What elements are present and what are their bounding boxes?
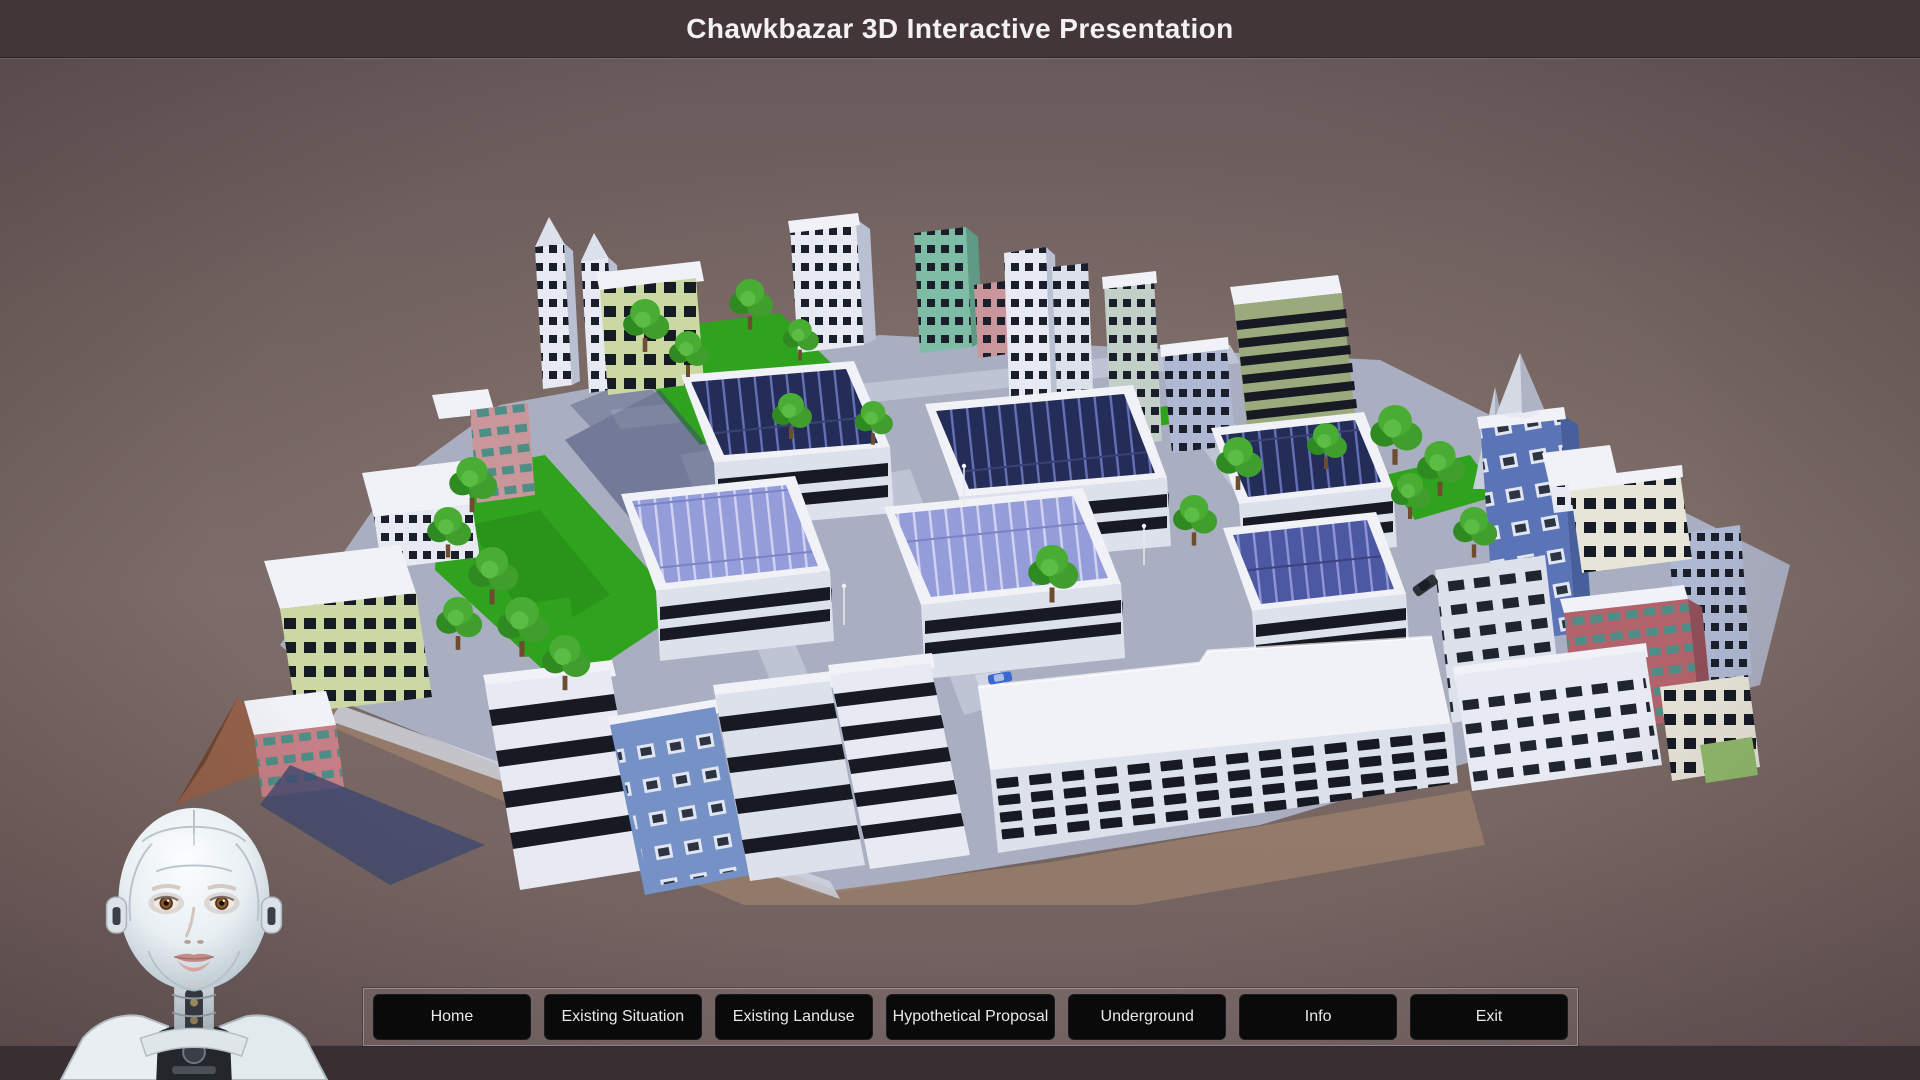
menu-button-existing-landuse[interactable]: Existing Landuse xyxy=(715,994,873,1040)
green-building xyxy=(264,545,432,713)
app-window: Chawkbazar 3D Interactive Presentation xyxy=(0,0,1920,1080)
teal-tower xyxy=(914,227,983,353)
app-title: Chawkbazar 3D Interactive Presentation xyxy=(686,13,1233,45)
menu-button-underground[interactable]: Underground xyxy=(1068,994,1226,1040)
viewport-3d[interactable]: Home Existing Situation Existing Landuse… xyxy=(0,57,1920,1080)
menu-bar: Home Existing Situation Existing Landuse… xyxy=(363,988,1578,1046)
city-3d-model[interactable] xyxy=(140,205,1810,905)
menu-button-info[interactable]: Info xyxy=(1239,994,1397,1040)
robot-assistant-avatar xyxy=(44,782,344,1080)
menu-button-existing-situation[interactable]: Existing Situation xyxy=(544,994,702,1040)
white-office-building xyxy=(1453,643,1662,791)
title-bar: Chawkbazar 3D Interactive Presentation xyxy=(0,0,1920,58)
menu-button-exit[interactable]: Exit xyxy=(1410,994,1568,1040)
cream-building xyxy=(1568,465,1692,573)
twin-tower xyxy=(535,217,580,389)
menu-button-home[interactable]: Home xyxy=(373,994,531,1040)
menu-button-hypothetical-proposal[interactable]: Hypothetical Proposal xyxy=(886,994,1056,1040)
cream-green-building xyxy=(1660,675,1760,783)
